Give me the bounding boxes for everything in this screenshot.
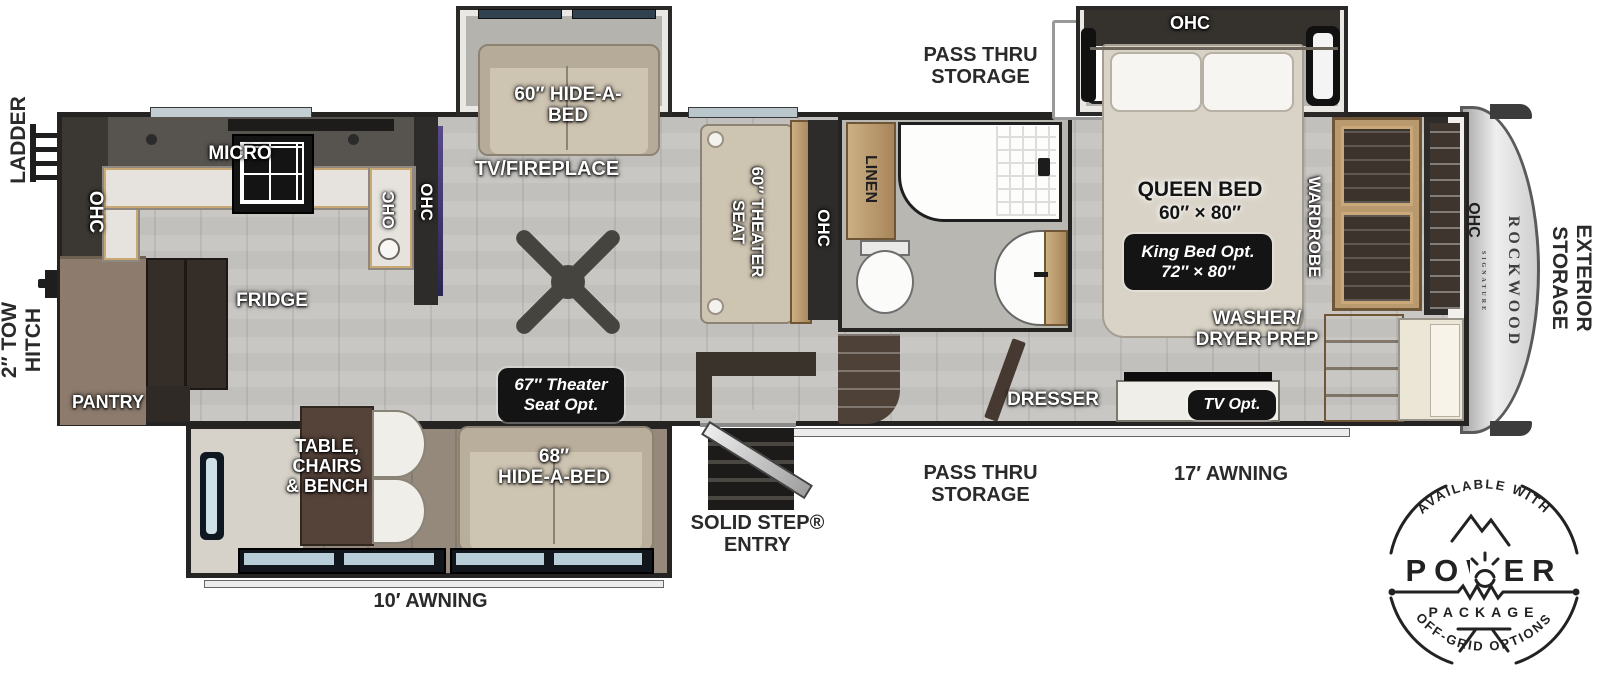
front-cap-corner-top <box>1490 104 1532 119</box>
tv-optional-panel <box>1124 372 1272 381</box>
hide-a-bed-68-label: 68″ HIDE-A-BED <box>470 446 638 489</box>
desk-leg <box>696 376 712 418</box>
fridge-label: FRIDGE <box>220 290 324 311</box>
slide-window-glass <box>456 553 544 565</box>
dinette-label: TABLE, CHAIRS & BENCH <box>252 436 402 496</box>
living-window <box>688 107 798 118</box>
theater-seat-label: 60″ THEATER SEAT <box>727 147 767 297</box>
cupholder <box>707 131 724 148</box>
pantry-label: PANTRY <box>56 392 160 412</box>
queen-bed-label: QUEEN BED <box>1100 178 1300 202</box>
vanity-cabinet <box>1044 230 1068 326</box>
hide-a-bed-68-sofa <box>458 426 654 552</box>
ohc-front-label: OHC <box>1464 188 1482 252</box>
slide-window-glass <box>344 553 434 565</box>
badge-available-with: AVAILABLE WITH <box>1414 476 1554 516</box>
slide-window-glass <box>244 553 334 565</box>
wardrobe-shelf-bottom <box>1341 212 1413 304</box>
queen-size-label: 60″ × 80″ <box>1100 203 1300 224</box>
faucet <box>1034 272 1048 277</box>
micro-label: MICRO <box>178 143 302 164</box>
ohc-bedroom-label: OHC <box>1150 13 1230 33</box>
exterior-storage-label: EXTERIOR STORAGE <box>1549 203 1595 353</box>
ohc-theater-label: OHC <box>813 196 833 260</box>
shower-head-icon <box>1038 158 1050 176</box>
king-bed-option-badge: King Bed Opt. 72″ × 80″ <box>1124 234 1272 290</box>
pillow <box>1202 52 1294 112</box>
brand-name: ROCKWOOD <box>1504 194 1522 370</box>
front-closet-lower-drawer <box>1430 324 1460 417</box>
cupholder <box>707 298 724 315</box>
slide-window-glass <box>554 553 642 565</box>
pillow <box>1110 52 1202 112</box>
svg-text:AVAILABLE WITH: AVAILABLE WITH <box>1414 476 1554 516</box>
washer-dryer-label: WASHER/ DRYER PREP <box>1178 308 1336 351</box>
awning-17-rail <box>716 428 1350 437</box>
power-package-badge: AVAILABLE WITH POWER PACKAGE OFF-GRID OP… <box>1372 466 1596 680</box>
tv-fireplace-label: TV/FIREPLACE <box>452 158 642 180</box>
wardrobe-shelf-top <box>1341 126 1413 206</box>
ceiling-light <box>146 134 157 145</box>
divider-dot <box>1573 589 1580 596</box>
dinette-side-window-glass <box>206 458 217 534</box>
wardrobe-label: WARDROBE <box>1302 146 1324 308</box>
mountain-icon <box>1452 516 1509 545</box>
badge-package-word: PACKAGE <box>1429 604 1540 620</box>
closet-rod <box>1090 47 1338 50</box>
floorplan: LADDER 2″ TOW HITCH ROCKWOOD SIGNATURE E… <box>0 0 1600 682</box>
dresser-label: DRESSER <box>992 389 1114 410</box>
slideout-window <box>572 9 656 19</box>
ohc-entertainment-label: OHC <box>416 170 436 234</box>
fridge-unit <box>146 258 228 390</box>
slideout-window <box>478 9 562 19</box>
solid-step-entry-label: SOLID STEP® ENTRY <box>670 512 845 557</box>
linen-label: LINEN <box>859 134 879 224</box>
tv-panel <box>438 126 443 296</box>
ladder-label: LADDER <box>7 85 33 195</box>
awning-10-label: 10′ AWNING <box>348 590 513 612</box>
tow-hitch-label: 2″ TOW HITCH <box>0 255 46 425</box>
awning-17-label: 17′ AWNING <box>1146 463 1316 485</box>
bedroom-window-left <box>1081 28 1096 102</box>
theater-seat-option-badge: 67″ Theater Seat Opt. <box>498 368 624 422</box>
pass-thru-bottom-label: PASS THRU STORAGE <box>903 462 1058 507</box>
bedroom-dresser-cabinet <box>1324 314 1404 422</box>
front-closet-shelves <box>1430 123 1460 309</box>
brand-logo: ROCKWOOD SIGNATURE <box>1500 194 1540 370</box>
desk <box>696 352 816 376</box>
awning-10-rail <box>204 580 664 588</box>
ceiling-light <box>348 134 359 145</box>
tv-option-badge: TV Opt. <box>1188 390 1276 420</box>
divider-dot <box>1389 589 1396 596</box>
pass-thru-top-label: PASS THRU STORAGE <box>903 44 1058 89</box>
ceiling-fan-hub <box>551 265 585 299</box>
ohc-sink-label: OHC <box>379 178 399 242</box>
bedroom-steps <box>838 334 900 424</box>
ohc-rear-label: OHC <box>84 177 106 247</box>
bedroom-window-right-glass <box>1313 33 1333 99</box>
front-cap-corner-bottom <box>1490 421 1532 436</box>
hide-a-bed-60-label: 60″ HIDE-A- BED <box>486 84 650 127</box>
toilet <box>856 250 914 314</box>
range-hood <box>228 119 394 131</box>
